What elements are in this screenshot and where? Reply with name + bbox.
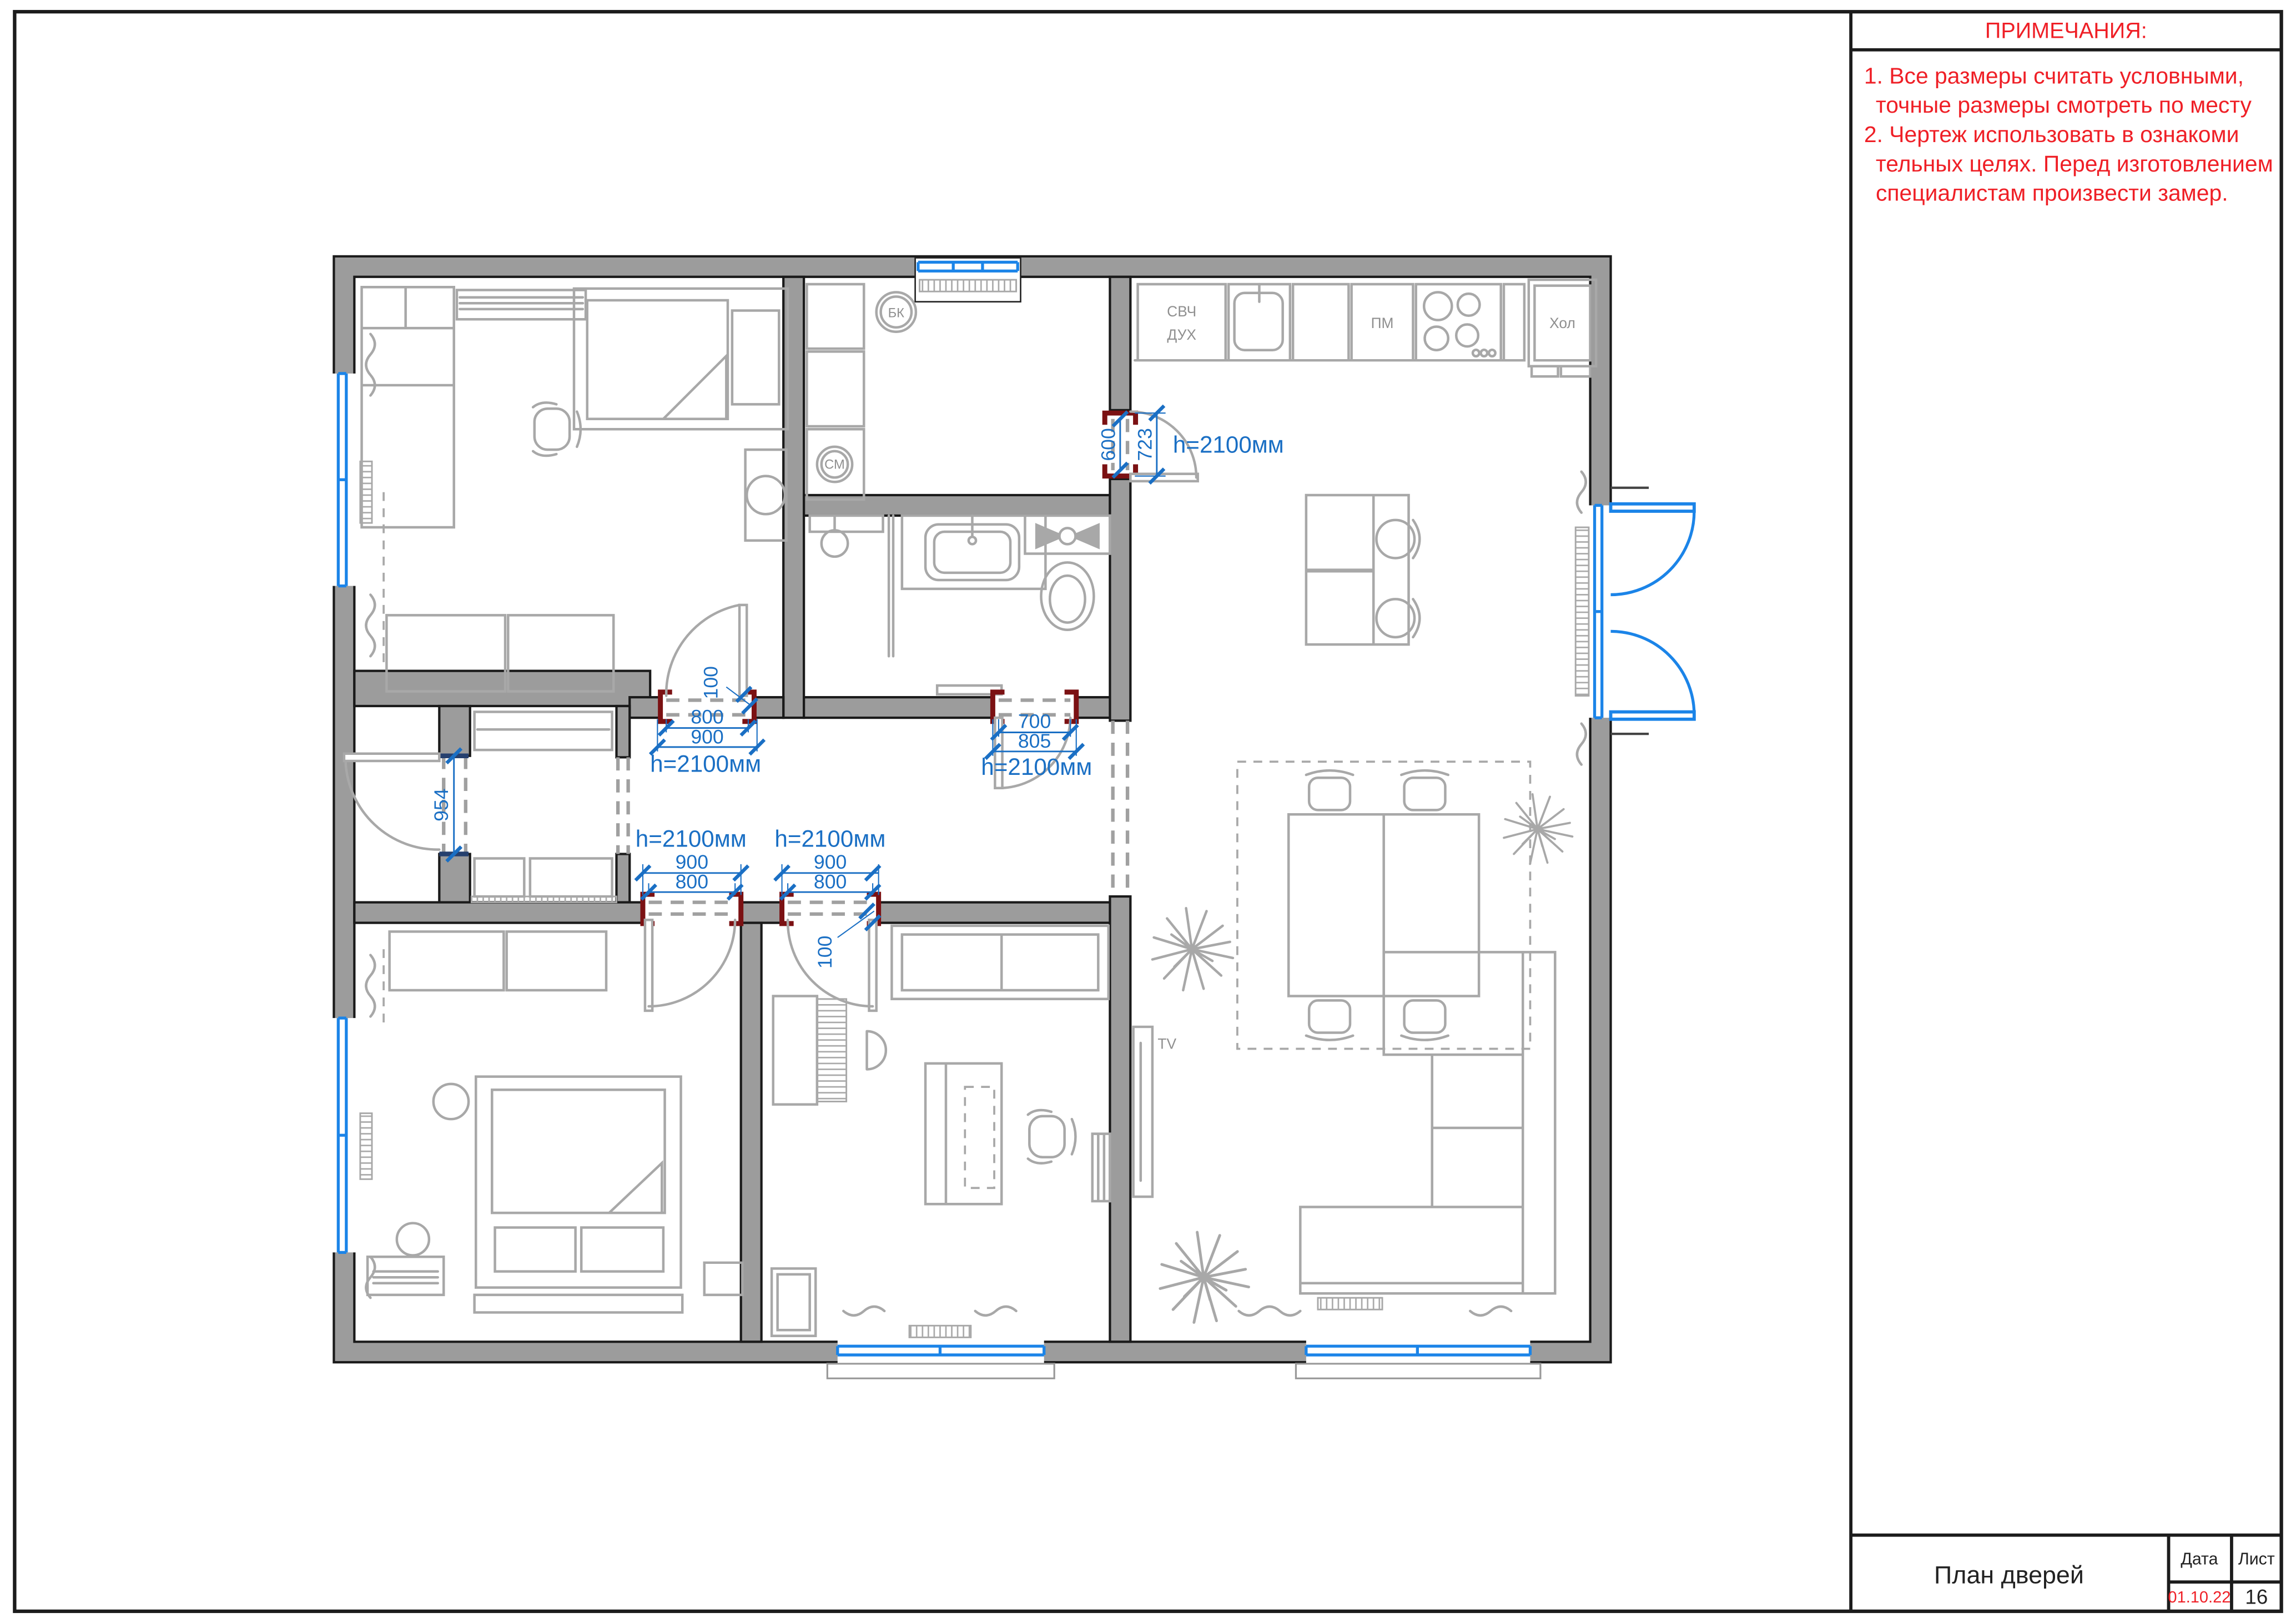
wall-room1-closet [354, 671, 650, 706]
date-label: Дата [2181, 1550, 2218, 1568]
door-kitchen: 600 723 h=2100мм [1097, 406, 1284, 483]
radiator-room1 [360, 461, 372, 523]
dishwasher-label: ПМ [1371, 315, 1394, 331]
windows [333, 258, 1540, 1378]
clear-width-label: 600 [1097, 428, 1120, 461]
bedside-table-icon [434, 1084, 469, 1119]
piano-keys [817, 999, 847, 1102]
wall-bathroom-south-left [804, 697, 993, 718]
wall-hall-bathroom [804, 495, 1110, 516]
frame-width-label: 805 [1018, 730, 1051, 752]
living-desk [1306, 495, 1409, 644]
radiator-balcony [1575, 527, 1589, 695]
door-height-label: h=2100мм [981, 754, 1092, 780]
shower-icon [822, 530, 848, 557]
door-room1: 800 900 100 h=2100мм [650, 605, 764, 777]
door-office: 900 800 100 h=2100мм [774, 825, 885, 1011]
sink-drain [969, 537, 976, 544]
door-plan-sheet: ПРИМЕЧАНИЯ: 1. Все размеры считать услов… [0, 0, 2296, 1623]
frame-width-label: 900 [814, 851, 847, 873]
note-line: точные размеры смотреть по месту [1876, 92, 2252, 118]
room1-furniture [362, 287, 788, 691]
frame-width-label: 723 [1134, 428, 1156, 461]
wall-thickness-label: 100 [814, 936, 836, 969]
closet-hatch [471, 896, 616, 903]
window-sill-living [1296, 1364, 1540, 1378]
bathroom [810, 516, 1110, 694]
clear-width-label: 800 [691, 706, 723, 728]
radiator-living [1318, 1298, 1382, 1309]
entrance-hall: СМ БК [807, 280, 1016, 500]
door-height-label: h=2100мм [636, 825, 747, 851]
balcony-edge-lines [1611, 488, 1649, 734]
wall-bathroom-kitchen [1110, 479, 1130, 720]
plant-icon [1504, 794, 1572, 864]
radiator-hall [920, 280, 1016, 291]
wall-hall-kitchen-upper [1110, 277, 1130, 410]
walls [334, 256, 1649, 1362]
door-opening-dashes [649, 903, 736, 914]
kitchen-counter [1135, 280, 1596, 376]
wall-thickness-label: 100 [700, 666, 722, 699]
room-top-left [360, 287, 788, 691]
cooktop-icon [1424, 292, 1495, 356]
sofa [1300, 952, 1555, 1293]
balcony-door-leaf-top [1611, 504, 1694, 511]
desk-dashed-zone [965, 1087, 994, 1188]
plant-icon [1152, 908, 1233, 990]
radiator-office [909, 1325, 971, 1337]
wall-closet-east-upper [616, 706, 630, 757]
door-height-label: h=2100мм [1173, 431, 1284, 457]
door-closet: 954 [344, 749, 469, 861]
clear-width-label: 800 [676, 871, 708, 893]
door-leaf [1130, 474, 1197, 481]
door-leaf [739, 605, 747, 696]
sheet-value: 16 [2245, 1586, 2268, 1609]
floor-plan: СМ БК СВЧ ДУХ ПМ [333, 256, 1694, 1378]
wall-nook-upper [439, 706, 470, 756]
window-sill-office [827, 1364, 1054, 1378]
date-value: 01.10.22 [2168, 1589, 2230, 1606]
drawing-title: План дверей [1934, 1561, 2084, 1589]
clear-width-label: 800 [814, 871, 847, 893]
dining-chair-icon [1401, 1000, 1448, 1040]
notes-panel: ПРИМЕЧАНИЯ: 1. Все размеры считать услов… [1851, 19, 2282, 206]
wall-hall-north-left [630, 697, 660, 718]
note-line: тельных целях. Перед изготовлением [1876, 151, 2273, 177]
oven-label: ДУХ [1167, 326, 1196, 343]
door-leaf [344, 754, 439, 761]
note-line: специалистам произвести замер. [1876, 180, 2228, 206]
frame-width-label: 900 [676, 851, 708, 873]
closet [471, 712, 616, 903]
boiler-label: БК [888, 306, 905, 320]
opening-width-label: 954 [430, 788, 452, 821]
toilet-valve-center [1059, 528, 1075, 544]
title-block: План дверей Дата Лист 01.10.22 16 [1851, 1535, 2282, 1611]
fridge-label: Хол [1549, 315, 1575, 331]
curtain-office [843, 1307, 1016, 1315]
notes-header: ПРИМЕЧАНИЯ: [1985, 19, 2147, 43]
door-swing-arc [649, 920, 736, 1006]
wall-hall-north-right [754, 697, 783, 718]
door-opening-dashes [788, 903, 873, 914]
radiator-bedroom [360, 1113, 372, 1180]
door-leaf [869, 920, 877, 1011]
bedroom [360, 931, 742, 1312]
side-table-icon [747, 476, 785, 515]
clear-width-label: 700 [1018, 710, 1051, 733]
wall-hall-south-stub [741, 903, 782, 923]
door-leaf [645, 920, 652, 1011]
wall-nook-lower [439, 854, 470, 903]
desk-chair-icon [1028, 1110, 1076, 1163]
frame-width-label: 900 [691, 725, 723, 748]
wall-closet-east-lower [616, 854, 630, 903]
door-height-label: h=2100мм [774, 825, 885, 851]
dining-chair-icon [1306, 1000, 1353, 1040]
balcony-door-swing-top [1611, 511, 1694, 594]
microwave-label: СВЧ [1167, 303, 1196, 320]
balcony-door-swing-bottom [1611, 631, 1694, 714]
door-swing-arc [346, 762, 440, 849]
vanity-stool-icon [397, 1223, 429, 1256]
door-height-label: h=2100мм [650, 751, 761, 777]
office-furniture [772, 926, 1110, 1336]
door-bathroom: 700 805 h=2100мм [981, 692, 1092, 788]
note-line: 2. Чертеж использовать в ознакоми [1864, 122, 2239, 147]
sheet-label: Лист [2238, 1550, 2275, 1568]
dining-chair-icon [1401, 770, 1448, 810]
balcony-door-leaf-bottom [1611, 712, 1694, 719]
note-line: 1. Все размеры считать условными, [1864, 63, 2244, 88]
tv-label: TV [1157, 1036, 1176, 1052]
door-bedroom: 900 800 h=2100мм [636, 825, 748, 1011]
wall-bathroom-south-right [1076, 697, 1110, 718]
office [772, 926, 1110, 1338]
wall-hall-south-east [879, 903, 1110, 923]
bedroom-furniture [367, 931, 742, 1312]
washing-machine-label: СМ [824, 457, 845, 472]
tv-unit [1134, 1027, 1152, 1197]
piano-stool-icon [867, 1031, 886, 1070]
dining-chair-icon [1306, 770, 1353, 810]
wall-bedroom-office [741, 923, 762, 1342]
closet-shelves [475, 712, 612, 897]
wall-office-living [1110, 896, 1130, 1342]
wall-hall-south-west [354, 903, 643, 923]
toilet-bowl [1050, 576, 1085, 622]
plant-icon [1160, 1232, 1249, 1323]
